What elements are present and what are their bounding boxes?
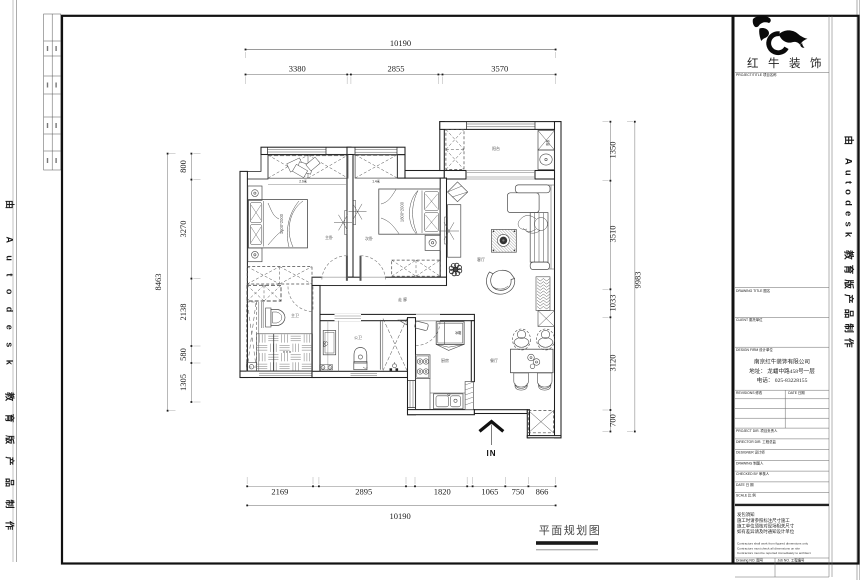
svg-text:8463: 8463	[153, 274, 163, 291]
svg-text:DESIGN FIRM 设计单位: DESIGN FIRM 设计单位	[736, 347, 773, 352]
svg-text:1350: 1350	[608, 142, 618, 159]
svg-text:主卫: 主卫	[291, 312, 299, 318]
svg-text:主卧: 主卧	[325, 234, 333, 240]
svg-text:1065: 1065	[481, 487, 498, 497]
svg-text:1033: 1033	[608, 295, 618, 312]
svg-text:Contractors must check all dim: Contractors must check all dimensions on…	[737, 546, 800, 550]
svg-text:餐厅: 餐厅	[490, 357, 498, 363]
svg-text:IN: IN	[487, 449, 497, 458]
svg-text:冰箱: 冰箱	[455, 330, 462, 335]
svg-text:3570: 3570	[491, 64, 508, 74]
svg-text:客厅: 客厅	[477, 256, 485, 262]
svg-text:1820: 1820	[434, 487, 451, 497]
svg-text:10190: 10190	[390, 38, 411, 48]
svg-text:9983: 9983	[633, 272, 643, 289]
svg-text:DIRECTOR DIR. 工程总监: DIRECTOR DIR. 工程总监	[736, 439, 776, 444]
svg-text:10190: 10190	[389, 511, 410, 521]
svg-text:地址： 龙蟠中路458号一层: 地址： 龙蟠中路458号一层	[749, 367, 815, 375]
svg-text:CHECKED BY 审核人: CHECKED BY 审核人	[736, 471, 770, 476]
svg-text:平面规划图: 平面规划图	[539, 523, 602, 537]
svg-text:DATE 日 期: DATE 日 期	[736, 482, 754, 487]
svg-text:700: 700	[608, 414, 618, 427]
svg-text:3380: 3380	[289, 64, 306, 74]
svg-text:800: 800	[178, 160, 188, 173]
svg-text:3510: 3510	[608, 226, 618, 243]
svg-text:2.0米: 2.0米	[299, 179, 307, 184]
svg-text:2138: 2138	[178, 304, 188, 321]
svg-text:REVISIONS 修改: REVISIONS 修改	[736, 390, 763, 395]
svg-text:2855: 2855	[388, 64, 405, 74]
svg-text:1800*2000: 1800*2000	[400, 201, 405, 222]
svg-text:DRAWING TITLE 图名: DRAWING TITLE 图名	[736, 288, 770, 293]
svg-text:PROJECT DIR. 项目负责人: PROJECT DIR. 项目负责人	[736, 428, 778, 433]
svg-text:次卧: 次卧	[365, 235, 373, 241]
svg-text:1.4米: 1.4米	[372, 179, 380, 184]
svg-text:Drawing NO. 图号: Drawing NO. 图号	[736, 558, 764, 563]
svg-text:南京红牛装饰有限公司: 南京红牛装饰有限公司	[754, 358, 810, 366]
svg-text:SCALE 比 例: SCALE 比 例	[736, 493, 756, 498]
svg-text:DESIGNER 设计师: DESIGNER 设计师	[736, 450, 765, 455]
svg-text:如有差异请及时通知设计单位: 如有差异请及时通知设计单位	[737, 528, 795, 535]
svg-text:PROJECT/TITLE 项目名称: PROJECT/TITLE 项目名称	[736, 72, 777, 77]
svg-text:866: 866	[536, 487, 549, 497]
svg-text:公卫: 公卫	[354, 335, 362, 340]
svg-text:阳台: 阳台	[492, 145, 500, 151]
svg-text:洗衣: 洗衣	[545, 139, 550, 146]
svg-text:DRAWING 制图人: DRAWING 制图人	[736, 460, 764, 465]
svg-text:750: 750	[512, 487, 525, 497]
svg-text:走 廊: 走 廊	[398, 296, 407, 302]
svg-text:电话： 025-83228155: 电话： 025-83228155	[757, 376, 808, 384]
svg-text:Contractors must be reported i: Contractors must be reported immediately…	[737, 551, 811, 555]
svg-text:2169: 2169	[271, 487, 288, 497]
svg-text:Job NO. 工程编号: Job NO. 工程编号	[778, 558, 806, 563]
svg-text:3270: 3270	[178, 221, 188, 238]
svg-text:DATE 日期: DATE 日期	[788, 390, 805, 395]
svg-text:厨房: 厨房	[441, 357, 449, 363]
svg-text:发包須知: 发包須知	[737, 511, 755, 518]
svg-text:1305: 1305	[178, 374, 188, 391]
svg-text:2895: 2895	[355, 487, 372, 497]
svg-text:CLIENT 委托单位: CLIENT 委托单位	[736, 317, 763, 322]
svg-text:Contractors shall work from fi: Contractors shall work from figured dime…	[737, 542, 808, 546]
svg-text:1500*2000: 1500*2000	[279, 213, 284, 234]
svg-text:580: 580	[178, 348, 188, 361]
svg-text:3120: 3120	[608, 355, 618, 372]
svg-text:红牛装饰: 红牛装饰	[747, 56, 831, 70]
